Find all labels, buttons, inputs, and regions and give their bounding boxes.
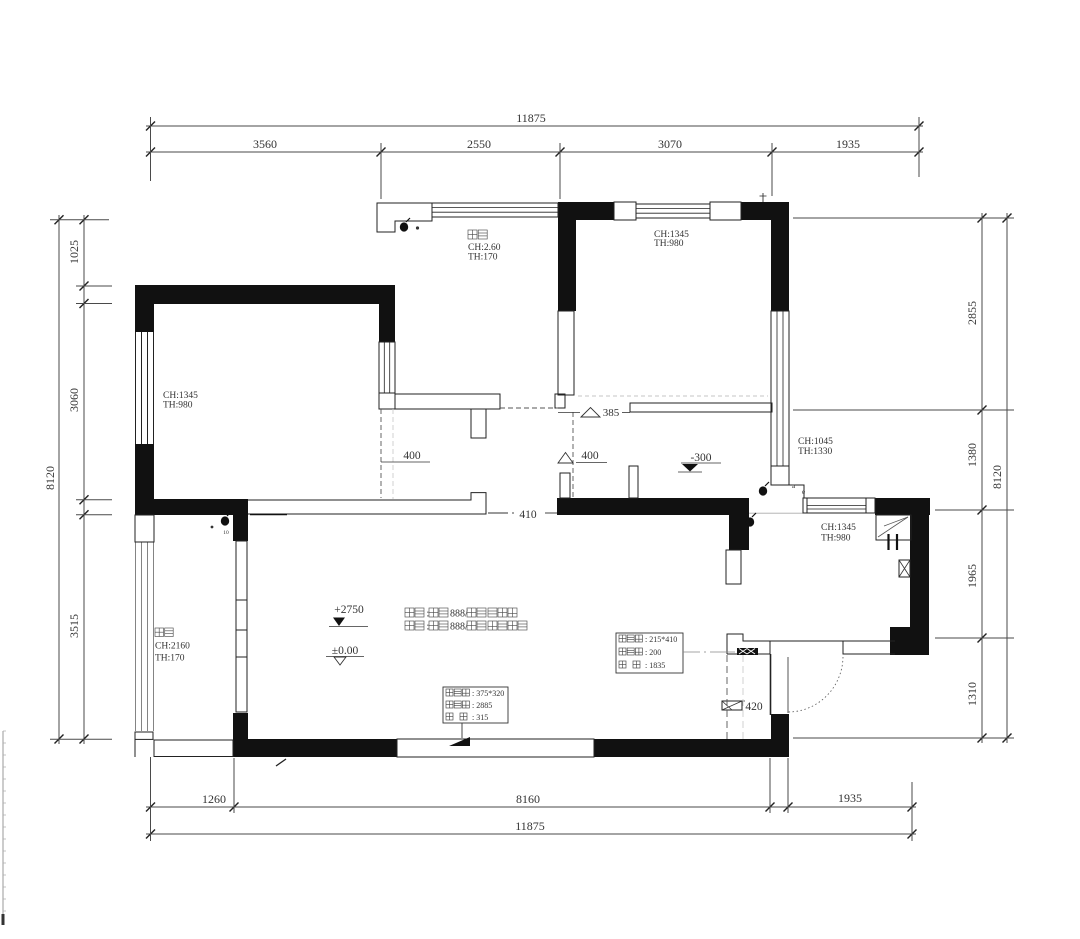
svg-text:: 2885: : 2885 [472,701,492,710]
svg-text:-300: -300 [690,452,711,464]
svg-text:CH:1345: CH:1345 [821,523,856,533]
svg-text:385: 385 [603,407,620,419]
svg-text:CH:1045: CH:1045 [798,437,833,447]
svg-text:TH:1330: TH:1330 [798,447,833,457]
svg-text:TH:980: TH:980 [654,239,684,249]
svg-text:3515: 3515 [67,614,81,638]
svg-text:2550: 2550 [467,137,491,151]
svg-text:1260: 1260 [202,792,226,806]
svg-text:888/: 888/ [450,609,468,620]
svg-text:CH:1345: CH:1345 [163,391,198,401]
svg-text:888/: 888/ [450,622,468,633]
svg-text:1025: 1025 [67,240,81,264]
svg-text:420: 420 [745,701,763,713]
svg-text:11875: 11875 [515,819,545,833]
svg-text:e: e [802,488,805,496]
svg-text:CH:2160: CH:2160 [155,642,190,652]
svg-text:3070: 3070 [658,137,682,151]
svg-text:410: 410 [519,509,537,521]
svg-text:: 315: : 315 [472,713,488,722]
svg-text:TH:980: TH:980 [821,534,851,544]
svg-text:CH:2.60: CH:2.60 [468,243,501,253]
svg-text:3060: 3060 [67,388,81,412]
svg-text:: 375*320: : 375*320 [472,689,504,698]
svg-text:1965: 1965 [965,564,979,588]
svg-text:10: 10 [223,530,229,536]
svg-text:8120: 8120 [990,465,1004,489]
svg-text:1935: 1935 [838,791,862,805]
svg-text:2855: 2855 [965,301,979,325]
svg-text:8120: 8120 [43,466,57,490]
svg-text:: 200: : 200 [645,648,661,657]
svg-text:3560: 3560 [253,137,277,151]
svg-text:: 1835: : 1835 [645,661,665,670]
svg-text:1310: 1310 [965,682,979,706]
svg-text:1380: 1380 [965,443,979,467]
svg-text:TH:170: TH:170 [468,253,498,263]
svg-text:TH:980: TH:980 [163,401,193,411]
svg-text:: 215*410: : 215*410 [645,635,677,644]
svg-text:400: 400 [581,450,599,462]
svg-text:+2750: +2750 [334,604,364,616]
svg-text:±0.00: ±0.00 [332,645,359,657]
svg-text:TH:170: TH:170 [155,654,185,664]
svg-text:8160: 8160 [516,792,540,806]
svg-text:1935: 1935 [836,137,860,151]
svg-text:400: 400 [403,450,421,462]
svg-text:11875: 11875 [516,111,546,125]
